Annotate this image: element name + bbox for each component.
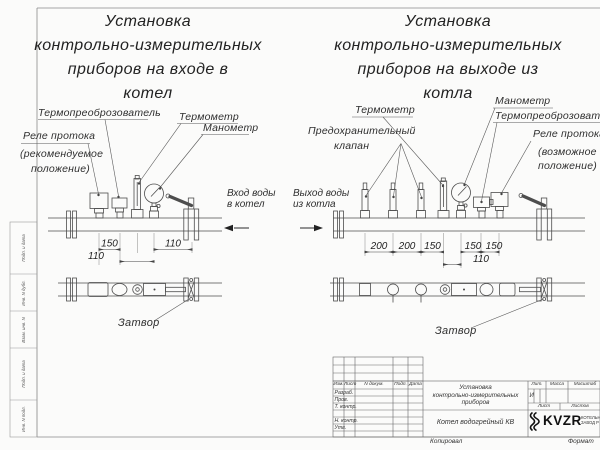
logo-subtext: КОТЕЛЬНЫЙ ЗАВОД Р	[581, 415, 600, 425]
tb-lit-value: И	[530, 393, 534, 399]
tb-row-razrab: Разраб.	[335, 391, 354, 396]
left-dim-110a: 110	[165, 239, 181, 250]
safety-valve-label-1: Предохранительный	[308, 126, 416, 137]
right-thermometer-device	[438, 178, 449, 218]
logo-kvzr: KVZR	[543, 414, 582, 428]
right-shutoff-valve-device	[519, 194, 552, 241]
right-flow-relay-label-2: (возможное	[538, 147, 597, 158]
left-thermotransducer-label: Термопреоброзователь	[38, 108, 161, 119]
tb-col-izm: Изм.	[333, 383, 344, 388]
format-label: Формат	[568, 439, 594, 446]
left-dimension-lines	[99, 250, 192, 262]
right-manometer-label: Манометр	[495, 96, 550, 107]
margin-label-3: Взам. инв. N	[19, 305, 29, 355]
right-dim-150a: 150	[424, 241, 441, 252]
right-title-line2: контрольно-измерительных	[302, 34, 594, 58]
tb-mass-label: Масса	[546, 383, 568, 388]
left-flow-relay-label-2: (рекомендуемое	[20, 149, 103, 160]
right-pipe-top	[330, 278, 585, 303]
right-thermotransducer-device	[474, 197, 494, 218]
left-pipe-front	[48, 211, 222, 238]
tb-sheets-label: Листов	[560, 405, 600, 410]
outlet-water-line1: Выход воды	[293, 188, 349, 199]
right-dim-200b: 200	[398, 241, 416, 252]
logo-subtext-line2: ЗАВОД Р	[581, 420, 600, 425]
left-title-line3: приборов на входе в	[2, 58, 294, 82]
tb-product-name: Котел водогрейный КВ	[424, 419, 527, 426]
left-dim-150: 150	[101, 239, 118, 250]
right-title-line3: приборов на выходе из	[302, 58, 594, 82]
right-thermometer-label: Термометр	[355, 105, 415, 116]
left-flow-relay-label-3: положение)	[31, 164, 90, 175]
tb-row-prov: Пров.	[335, 398, 349, 403]
right-manometer-device	[452, 183, 471, 218]
left-title-line1: Установка	[2, 10, 294, 34]
inlet-water-line2: в котел	[227, 199, 276, 210]
tb-doc-title-3: приборов	[424, 400, 527, 406]
outlet-water-label: Выход воды из котла	[293, 188, 349, 210]
left-dimension-text: 150 110 110	[88, 239, 181, 263]
margin-label-4: Подп. и дата	[19, 349, 29, 399]
right-flow-relay-device	[491, 193, 508, 219]
tb-row-nkontr: Н. контр.	[335, 419, 358, 424]
margin-label-5: Инв. N подл.	[19, 394, 29, 444]
right-dim-200a: 200	[370, 241, 388, 252]
right-thermotransducer-label: Термопреоброзователь	[495, 111, 600, 122]
outlet-flow-arrow	[300, 225, 323, 231]
tb-col-ndokum: N докум.	[355, 383, 393, 388]
inlet-flow-arrow	[224, 225, 249, 231]
left-dim-110b: 110	[88, 251, 104, 262]
left-title-line2: контрольно-измерительных	[2, 34, 294, 58]
right-dim-110: 110	[473, 254, 489, 265]
right-dim-150b: 150	[465, 241, 482, 252]
tb-row-utv: Утв.	[335, 426, 347, 431]
left-thermometer-label: Термометр	[179, 112, 239, 123]
left-shutoff-valve-device	[166, 194, 199, 240]
left-title-line4: котел	[2, 82, 294, 106]
left-flow-relay-device	[90, 193, 108, 218]
tb-doc-title-1: Установка	[424, 385, 527, 391]
safety-valve-devices	[361, 183, 426, 218]
left-thermometer-device	[132, 176, 144, 219]
right-dimension-text: 200 200 150 150 150 110	[370, 241, 503, 265]
safety-valve-label-2: клапан	[334, 141, 369, 152]
right-flow-relay-label-1: Реле протока	[533, 129, 600, 140]
tb-col-list: Лист	[344, 383, 355, 388]
outlet-water-line2: из котла	[293, 199, 349, 210]
inlet-water-line1: Вход воды	[227, 188, 276, 199]
right-diagram-title: Установка контрольно-измерительных прибо…	[302, 10, 594, 106]
inlet-water-label: Вход воды в котел	[227, 188, 276, 210]
right-flow-relay-label-3: положение)	[538, 161, 597, 172]
tb-col-podp: Подп.	[393, 383, 408, 388]
right-valve-label: Затвор	[435, 326, 477, 337]
left-valve-label: Затвор	[118, 318, 160, 329]
left-flow-relay-label-1: Реле протока	[23, 131, 95, 142]
right-title-line1: Установка	[302, 10, 594, 34]
logo-wave-icon	[531, 413, 540, 431]
tb-scale-label: Масштаб	[568, 383, 600, 388]
tb-doc-title-2: контрольно-измерительных	[424, 393, 527, 399]
drawing-sheet: { "sheet": { "copied_label": "Копировал"…	[0, 0, 600, 450]
right-dim-150c: 150	[486, 241, 503, 252]
left-manometer-label: Манометр	[203, 123, 258, 134]
margin-label-1: Подп. и дата	[19, 223, 29, 273]
left-pipe-top	[58, 278, 222, 301]
left-thermotransducer-device	[112, 198, 127, 218]
tb-lit-label: Лит.	[528, 383, 546, 388]
tb-row-tkontr: Т. контр.	[335, 405, 357, 410]
tb-col-data: Дата	[408, 383, 423, 388]
tb-sheet-label: Лист	[528, 405, 560, 410]
copied-label: Копировал	[430, 439, 462, 446]
left-diagram-title: Установка контрольно-измерительных прибо…	[2, 10, 294, 106]
